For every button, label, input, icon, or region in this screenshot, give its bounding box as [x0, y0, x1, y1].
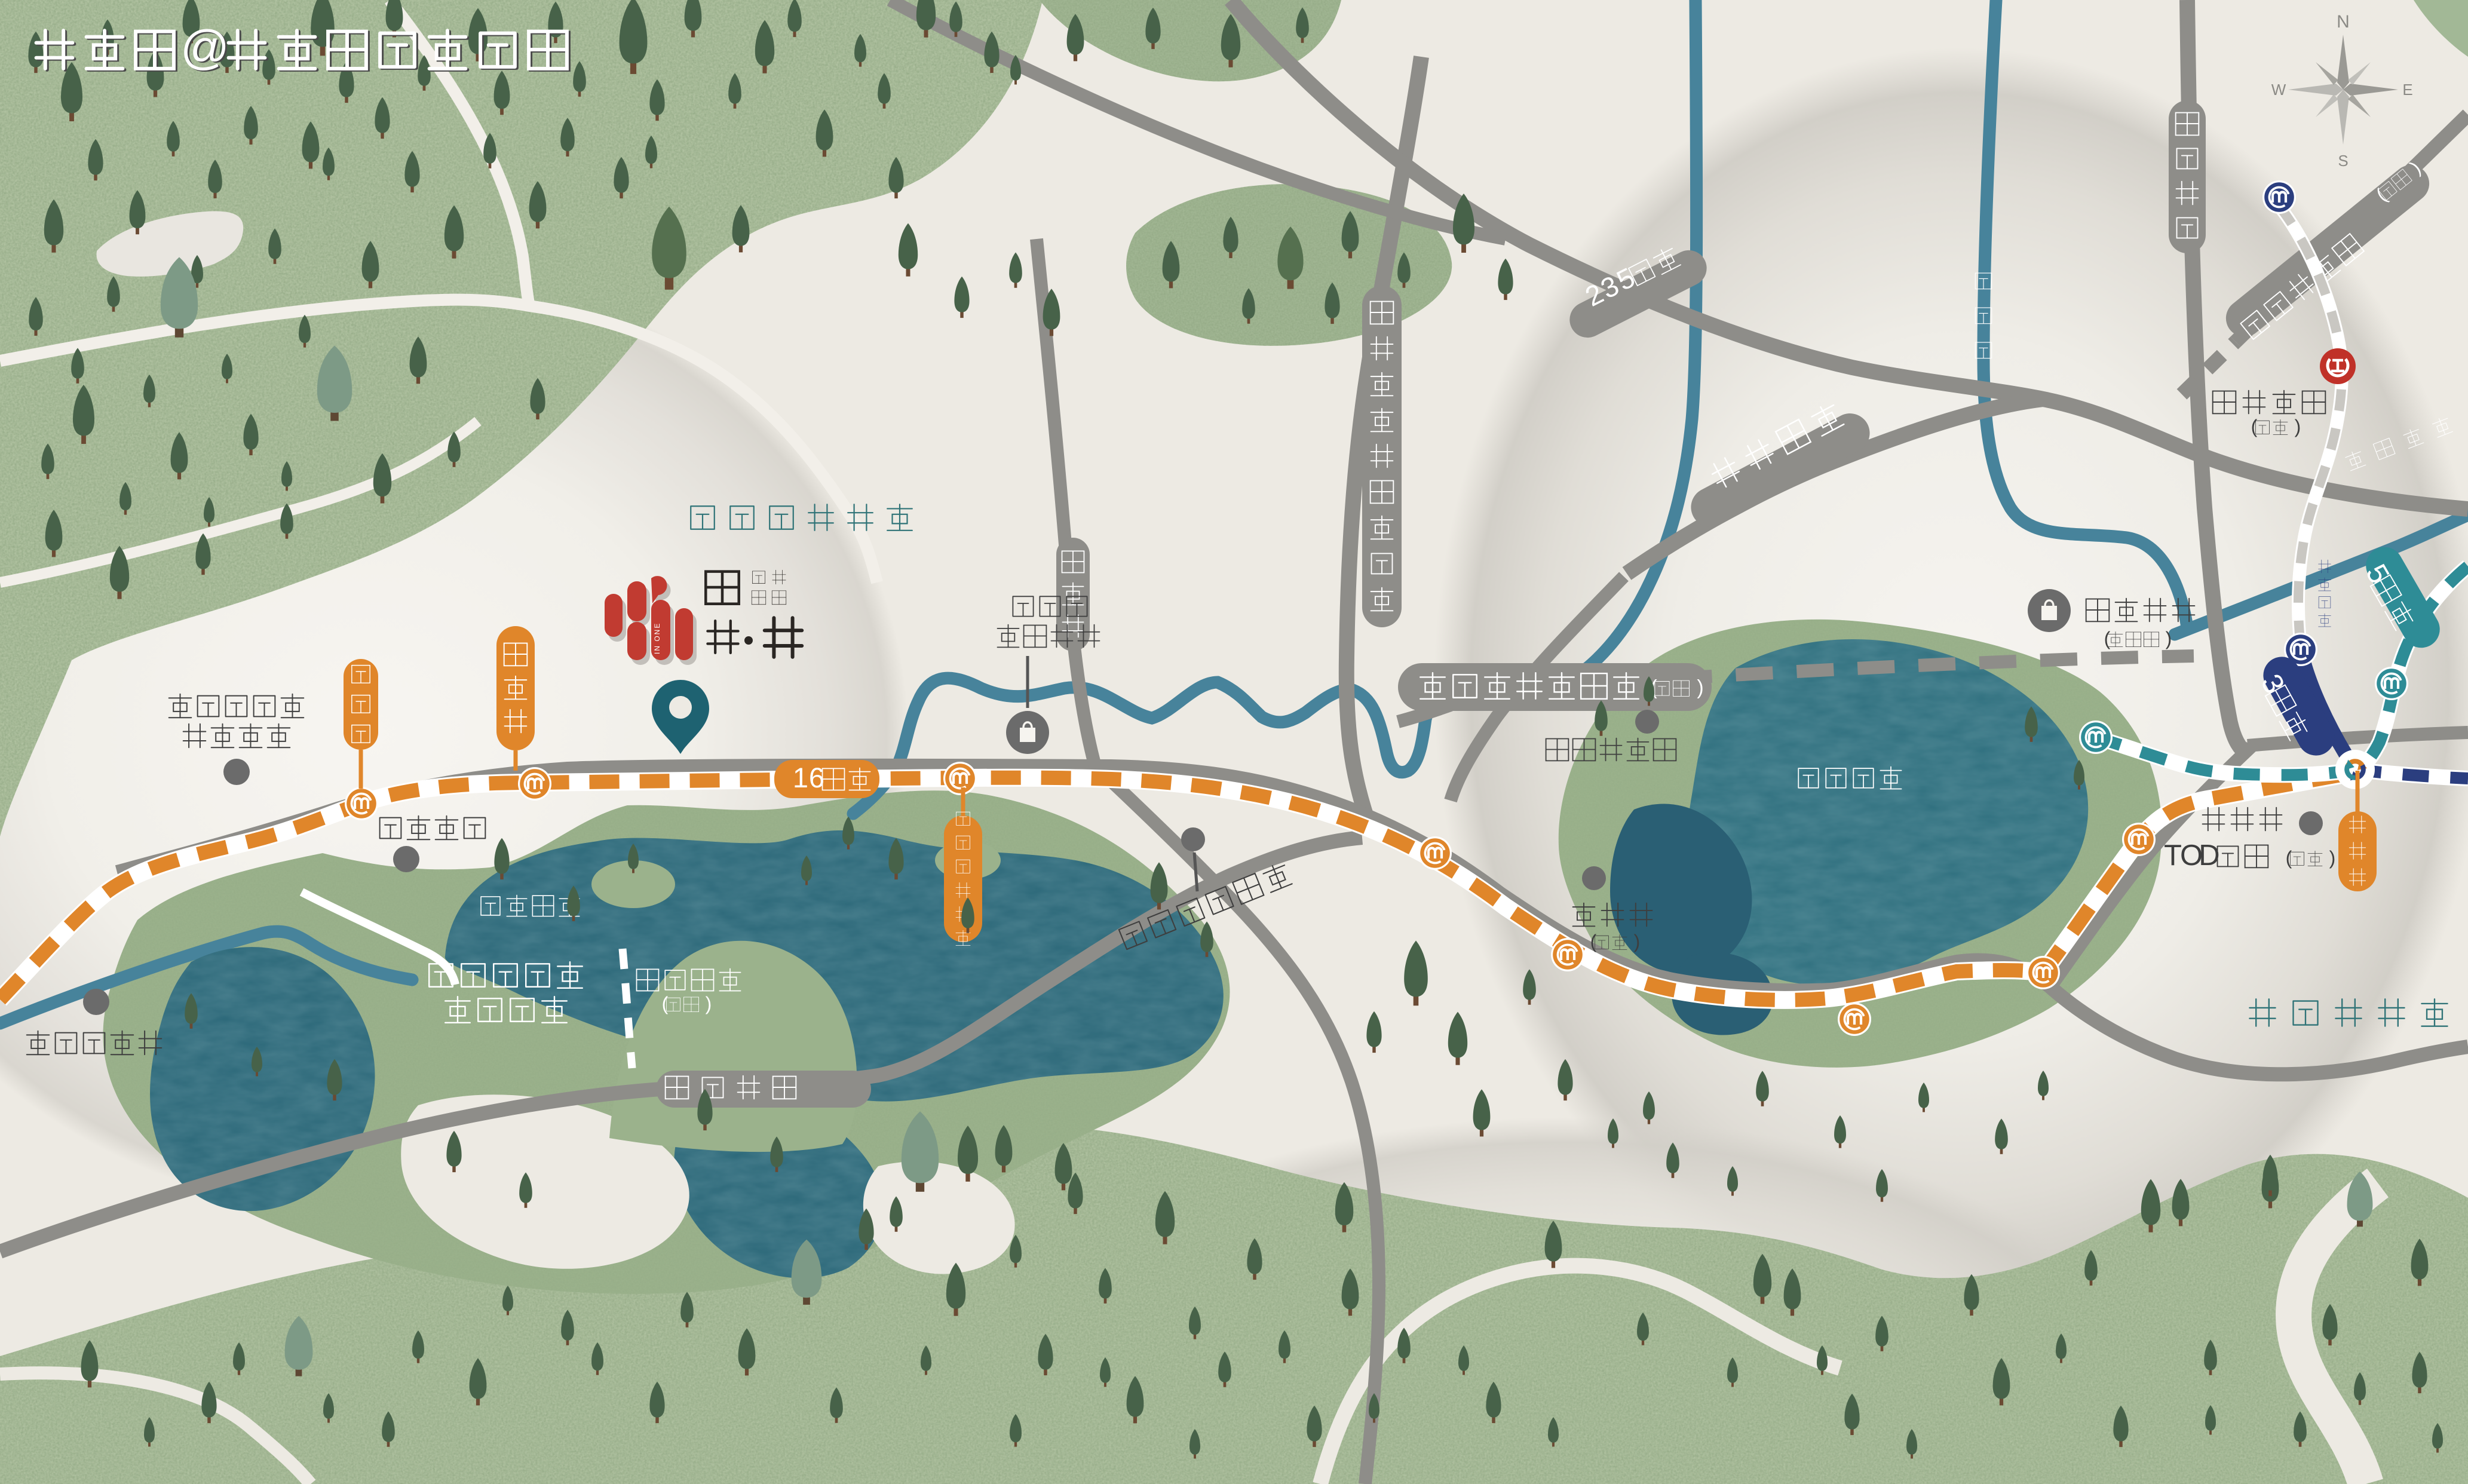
svg-text:1: 1: [793, 762, 808, 793]
svg-text:(: (: [2104, 628, 2111, 649]
svg-text:S: S: [2338, 152, 2348, 170]
svg-text:T: T: [2164, 839, 2182, 872]
svg-text:IN ONE: IN ONE: [653, 623, 661, 654]
svg-text:@: @: [180, 21, 229, 75]
svg-text:): ): [1634, 931, 1641, 952]
svg-text:): ): [2295, 416, 2301, 437]
svg-text:): ): [2166, 628, 2172, 649]
svg-text:): ): [706, 993, 712, 1014]
svg-text:N: N: [2337, 12, 2350, 32]
svg-text:D: D: [2199, 839, 2219, 872]
svg-text:W: W: [2271, 81, 2286, 99]
svg-text:E: E: [2402, 81, 2412, 99]
svg-text:): ): [1697, 676, 1703, 699]
svg-text:): ): [2329, 847, 2336, 869]
